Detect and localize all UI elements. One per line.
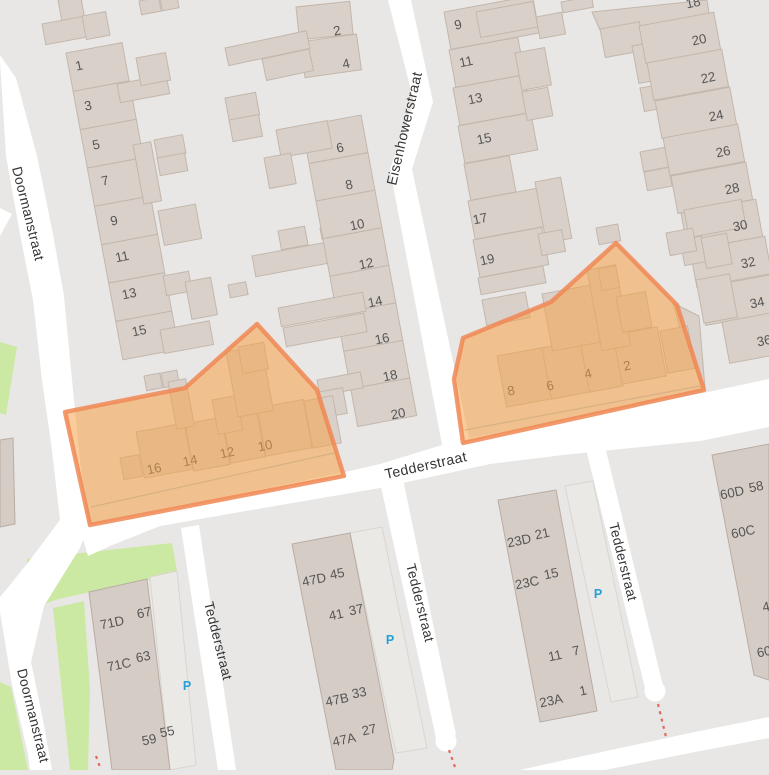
- svg-text:34: 34: [748, 294, 765, 312]
- svg-text:22: 22: [699, 69, 716, 87]
- svg-text:12: 12: [357, 255, 374, 273]
- svg-text:60: 60: [755, 643, 769, 661]
- svg-text:59: 59: [140, 731, 157, 749]
- svg-text:20: 20: [389, 405, 406, 423]
- svg-text:P: P: [594, 587, 602, 601]
- svg-text:55: 55: [158, 723, 175, 741]
- svg-text:24: 24: [707, 107, 724, 125]
- svg-text:37: 37: [347, 601, 364, 619]
- svg-text:16: 16: [373, 330, 390, 348]
- svg-text:32: 32: [739, 254, 756, 272]
- svg-text:15: 15: [475, 130, 492, 148]
- svg-text:15: 15: [542, 565, 559, 583]
- svg-text:28: 28: [723, 180, 740, 198]
- svg-text:13: 13: [466, 90, 483, 108]
- svg-text:26: 26: [714, 143, 731, 161]
- svg-text:27: 27: [360, 721, 377, 739]
- svg-text:41: 41: [327, 606, 344, 624]
- svg-text:20: 20: [690, 31, 707, 49]
- svg-text:15: 15: [130, 322, 147, 340]
- svg-text:14: 14: [366, 293, 383, 311]
- svg-text:10: 10: [348, 216, 365, 234]
- svg-text:17: 17: [471, 210, 488, 228]
- svg-text:67: 67: [135, 604, 152, 622]
- svg-text:33: 33: [350, 684, 367, 702]
- svg-text:19: 19: [478, 251, 495, 269]
- svg-text:P: P: [183, 679, 191, 693]
- svg-text:36: 36: [755, 332, 769, 350]
- svg-text:18: 18: [381, 367, 398, 385]
- svg-text:63: 63: [134, 648, 151, 666]
- svg-text:13: 13: [120, 285, 137, 303]
- svg-text:30: 30: [731, 217, 748, 235]
- svg-text:P: P: [386, 633, 394, 647]
- svg-text:45: 45: [328, 565, 345, 583]
- svg-text:58: 58: [747, 478, 764, 496]
- svg-text:21: 21: [533, 525, 550, 543]
